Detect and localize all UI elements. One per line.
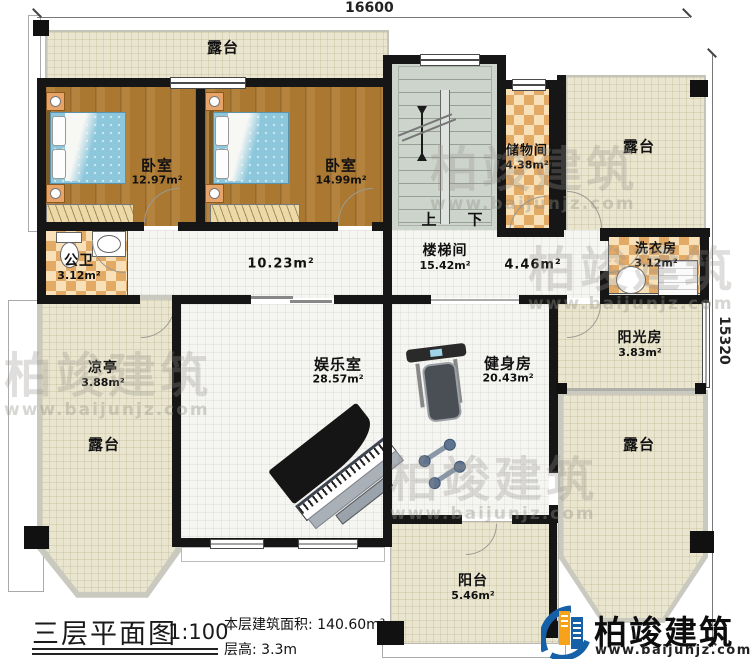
room-label-terrace-top-right: 露台 [623,139,655,156]
nightstand [46,184,65,203]
wall-segment [497,228,564,237]
wall-segment [243,78,390,87]
room-label-terrace-left: 露台 [88,437,120,454]
nightstand [46,92,65,111]
wall-segment [600,228,609,241]
nightstand [205,184,224,203]
wall-segment [519,295,567,304]
pillar [33,20,49,36]
plan-title: 三层平面图 [32,612,177,651]
floor-area-note: 本层建筑面积: 140.60m² [224,614,385,634]
wall-segment [390,515,462,524]
wall-segment [600,228,710,237]
top-dimension-line [37,17,689,18]
right-dimension-label: 15320 [716,316,732,364]
room-label-storage: 储物间4.38m² [505,145,548,172]
company-logo-url: www.baijunjz.com [595,643,750,658]
room-label-bedroom-left: 卧室12.97m² [131,157,182,186]
right-dimension-line [712,55,713,647]
room-label-laundry: 洗衣房3.12m² [634,243,677,270]
nightstand [205,92,224,111]
room-label-pavilion: 凉亭3.88m² [81,361,124,389]
room-label-terrace-bottom-right: 露台 [623,437,655,454]
treadmill-belt [422,361,463,423]
window [210,539,264,549]
bed-sheet [65,113,97,181]
pillar [690,80,708,97]
stair-up-label: 上 [421,209,436,230]
window [420,54,480,66]
wall-segment [172,538,392,547]
pillar [695,383,706,394]
title-underline [32,653,218,655]
stair-arrow-up [417,152,427,161]
room-terrace-bottom-right [563,395,703,621]
bed-sheet [228,113,260,181]
pillow [52,149,66,179]
room-label-hall: 4.46m² [504,259,561,274]
pillow [52,116,66,146]
treadmill-screen [430,349,443,357]
room-label-sunroom: 阳光房3.83m² [618,331,663,359]
wall-segment [383,295,392,547]
treadmill [404,342,479,425]
floor-height-note: 层高: 3.3m [224,639,297,659]
room-label-bedroom-right: 卧室14.99m² [315,157,366,186]
pillar [556,383,567,394]
sliding-door [251,296,293,299]
company-logo-icon [541,601,591,659]
wall-segment [700,228,709,299]
window [512,79,546,91]
railing [558,388,704,391]
pillow [215,149,229,179]
top-dimension-label: 16600 [345,0,394,16]
room-label-entertainment: 娱乐室28.57m² [312,356,363,385]
window [298,539,358,549]
window [170,77,246,89]
wall-segment [172,295,181,547]
plan-scale: 1:100 [168,620,229,644]
wall-segment [600,295,709,304]
pillar [690,531,714,553]
room-label-stairwell: 楼梯间15.42m² [419,244,470,272]
stair-down-label: 下 [467,209,482,230]
wall-segment [175,295,251,304]
wall-segment [37,78,46,300]
room-label-corridor: 10.23m² [247,258,314,273]
wall-segment [37,222,144,231]
wall-segment [196,86,205,226]
room-label-public-bath: 公卫3.12m² [57,254,100,282]
room-label-balcony: 阳台5.46m² [451,574,494,602]
wall-segment [37,295,140,304]
stair-stringer [440,90,450,224]
pillar [24,526,49,549]
room-label-gym: 健身房20.43m² [482,355,533,384]
wall-segment [178,222,338,231]
window [702,302,710,388]
stair-arrow-down [417,106,427,115]
wall-segment [383,55,392,304]
wall-segment [557,75,566,230]
building-logo-icon [541,601,591,659]
wall-segment [37,78,171,87]
opening-beam [431,299,519,301]
sliding-door [290,300,332,303]
pillow [215,116,229,146]
title-underline [32,648,218,650]
exterior-strip [181,547,385,562]
floor-plan: 16600 15320 [0,0,750,672]
room-label-terrace-top: 露台 [207,40,239,57]
